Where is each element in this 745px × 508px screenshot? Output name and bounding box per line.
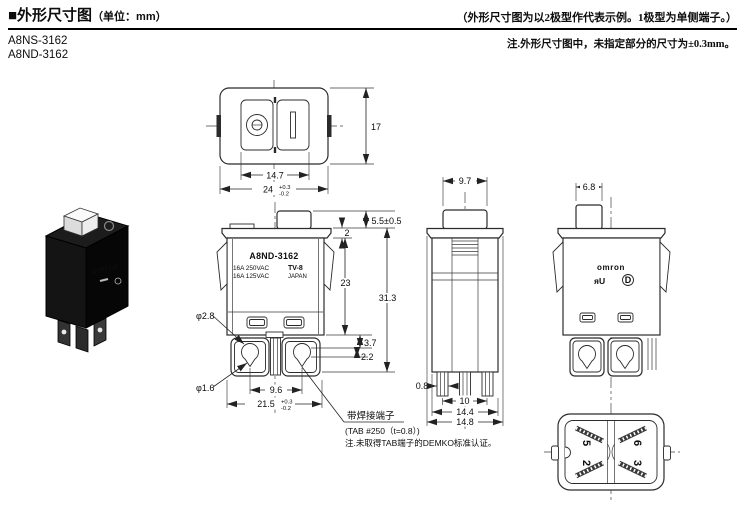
snap-latch-right <box>324 242 334 290</box>
dim-terminal-tip: 2.2 <box>361 352 374 362</box>
snap-latch-right <box>660 242 670 292</box>
dim-hole-large: φ2.8 <box>196 311 214 321</box>
dim-terminal-thickness: 0.8 <box>416 381 429 391</box>
dim-side-terminal-pitch: 10 <box>459 396 469 406</box>
side-view-9-7: 9.7 0.8 10 14.4 14.8 <box>416 176 503 431</box>
dim-flange-depth: 14.8 <box>456 417 474 427</box>
product-illustration: omron <box>46 208 128 352</box>
demko-mark-letter: D <box>625 275 632 285</box>
marking-rating-250: 16A 250VAC <box>233 265 270 272</box>
side-b-terminals <box>570 338 656 376</box>
marking-tv-rating: TV-8 <box>288 265 303 272</box>
marking-origin: JAPAN <box>288 274 307 280</box>
dim-depth: 17 <box>371 122 381 132</box>
callout-line1: 带焊接端子 <box>347 410 395 422</box>
dim-body-height: 23 <box>340 278 350 288</box>
snap-latch-left <box>217 242 227 290</box>
dim-overall-height: 31.3 <box>379 293 397 303</box>
terminal-number-5: 5 <box>580 440 592 446</box>
dim-hole-small: φ1.6 <box>196 383 214 393</box>
dim-body-width-tol-plus: +0.3 <box>281 400 292 406</box>
callout-line2: (TAB #250（t=0.8）) <box>345 426 420 436</box>
side-terminal-prongs <box>437 372 493 396</box>
photo-terminal-hole <box>98 328 103 333</box>
dim-overall-width-tol-plus: +0.3 <box>279 185 290 191</box>
marking-model: A8ND-3162 <box>249 251 298 261</box>
snap-latch-left <box>553 242 563 292</box>
top-view: 14.7 24 +0.3 -0.2 17 <box>206 80 381 198</box>
side-latch-tab <box>327 115 332 137</box>
terminal-number-2: 2 <box>580 460 592 466</box>
side-view-b-dimensions: 6.8 <box>576 182 602 202</box>
dim-body-width-tol-minus: -0.2 <box>281 406 291 412</box>
dim-terminal-offset: 3.7 <box>364 338 377 348</box>
side-latch-tab <box>552 446 559 460</box>
bottom-view: 5 6 2 3 <box>544 403 680 501</box>
ul-recognized-mark-icon: ᴙU <box>594 276 605 286</box>
brand-logo: omron <box>597 263 625 272</box>
terminal-number-3: 3 <box>631 460 643 466</box>
dim-rocker-protrusion: 5.5±0.5 <box>372 216 402 226</box>
dim-side-rocker-width: 9.7 <box>459 176 472 186</box>
front-view: A8ND-3162 16A 250VAC 16A 125VAC TV-8 JAP… <box>196 202 401 414</box>
on-symbol-icon <box>291 112 296 138</box>
photo-terminal-hole <box>62 330 67 335</box>
dim-body-width: 21.5 <box>257 399 275 409</box>
side-latch-tab <box>217 115 222 137</box>
dim-rocker-width: 14.7 <box>266 171 284 181</box>
photo-terminal <box>76 326 88 352</box>
dim-terminal-pitch: 9.6 <box>270 385 283 395</box>
dimension-drawing: omron 14.7 2 <box>0 0 745 508</box>
terminal-number-6: 6 <box>631 440 643 446</box>
callout-line3: 注.未取得TAB端子的DEMKO标准认证。 <box>345 438 496 448</box>
marking-rating-125: 16A 125VAC <box>233 273 270 280</box>
dim-overall-width: 24 <box>263 185 273 195</box>
front-terminals <box>231 338 320 376</box>
dim-flange-thickness: 2 <box>345 228 350 238</box>
dim-body-depth: 14.4 <box>456 407 474 417</box>
dim-rocker-depth: 6.8 <box>583 182 596 192</box>
side-latch-tab <box>664 446 671 460</box>
side-view-6-8: omron ᴙU D 6.8 <box>553 182 670 401</box>
dim-overall-width-tol-minus: -0.2 <box>279 192 289 198</box>
